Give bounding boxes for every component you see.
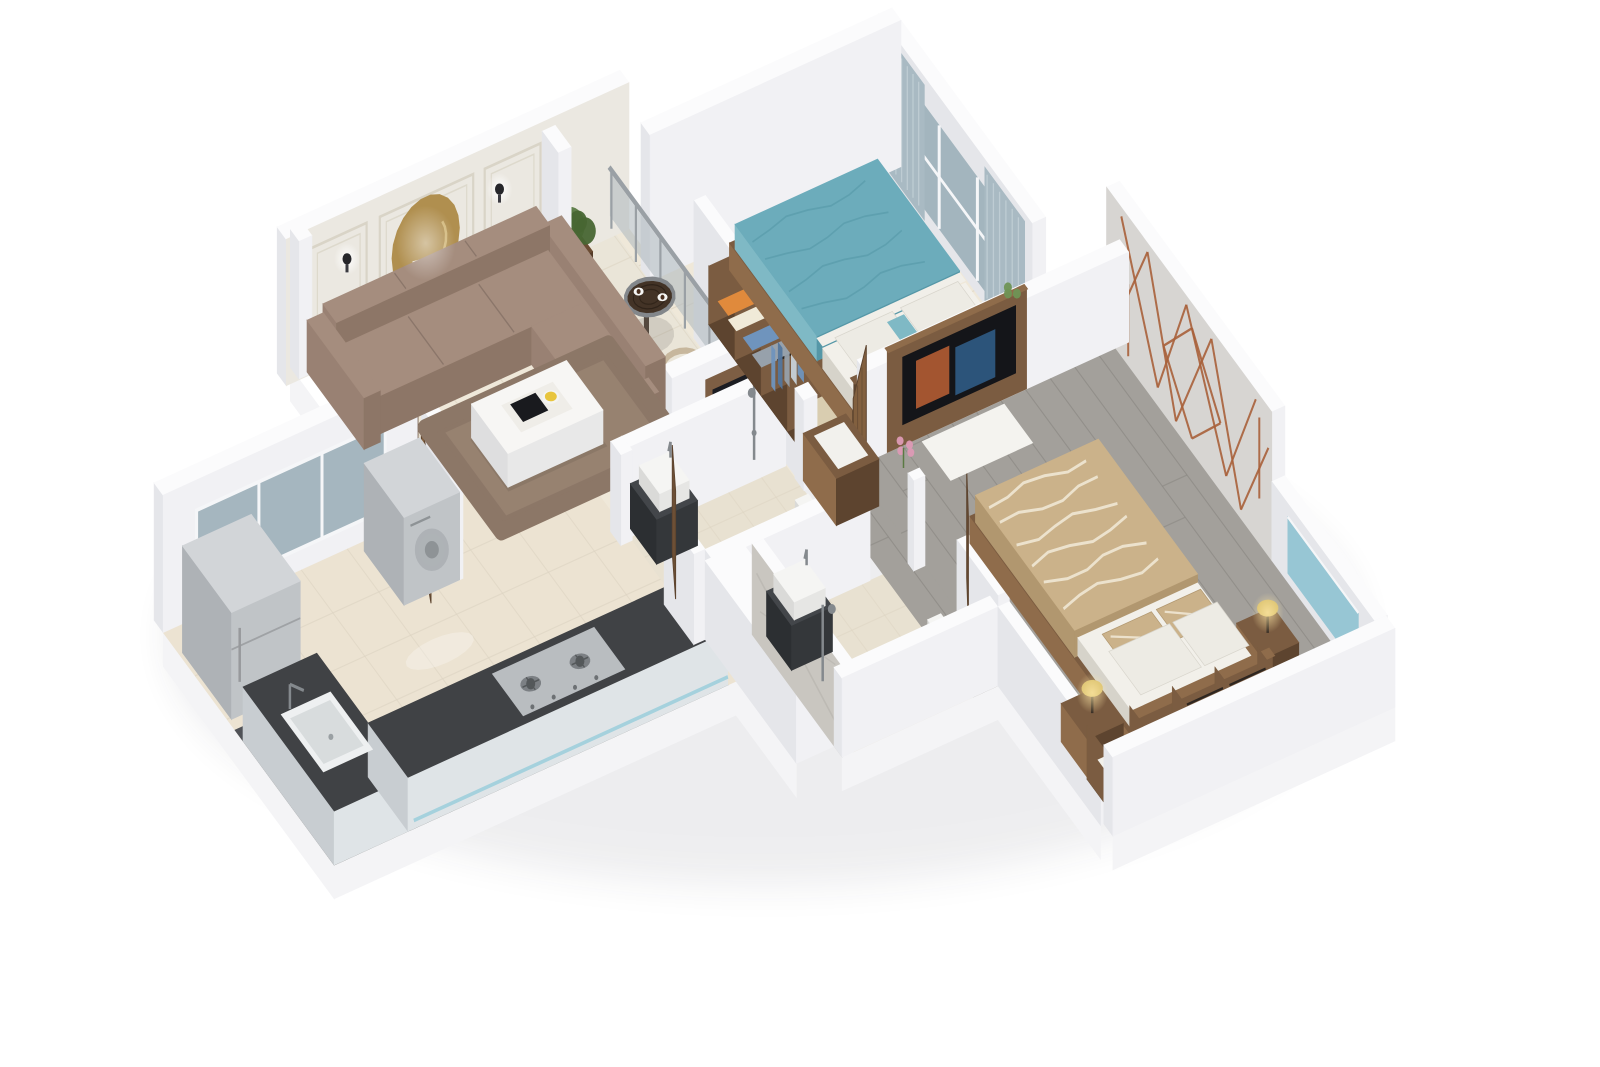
light-glows (396, 206, 456, 281)
floor-plan-canvas (0, 0, 1600, 1067)
isometric-floor-plan-render (0, 0, 1600, 1067)
